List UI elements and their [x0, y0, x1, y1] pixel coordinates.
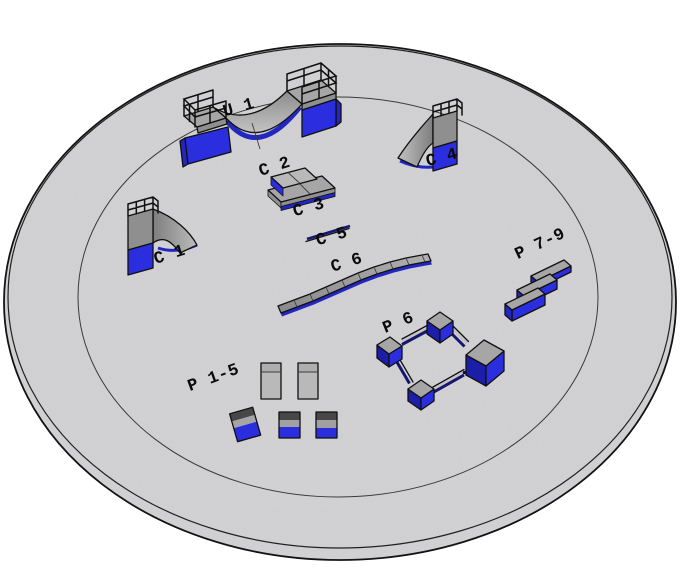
flat-pad-2: [298, 363, 318, 399]
rail-socket-hole: [463, 371, 467, 375]
small-box-2: [279, 412, 300, 438]
small-box-3: [316, 412, 337, 438]
skatepark-3d-render: U 1 C 1 C 2 C 3 C 4 C 5 C 6 P 1-5 P 6 P …: [0, 0, 680, 579]
flat-pad-1: [261, 363, 281, 399]
render-canvas: U 1 C 1 C 2 C 3 C 4 C 5 C 6 P 1-5 P 6 P …: [0, 0, 680, 579]
